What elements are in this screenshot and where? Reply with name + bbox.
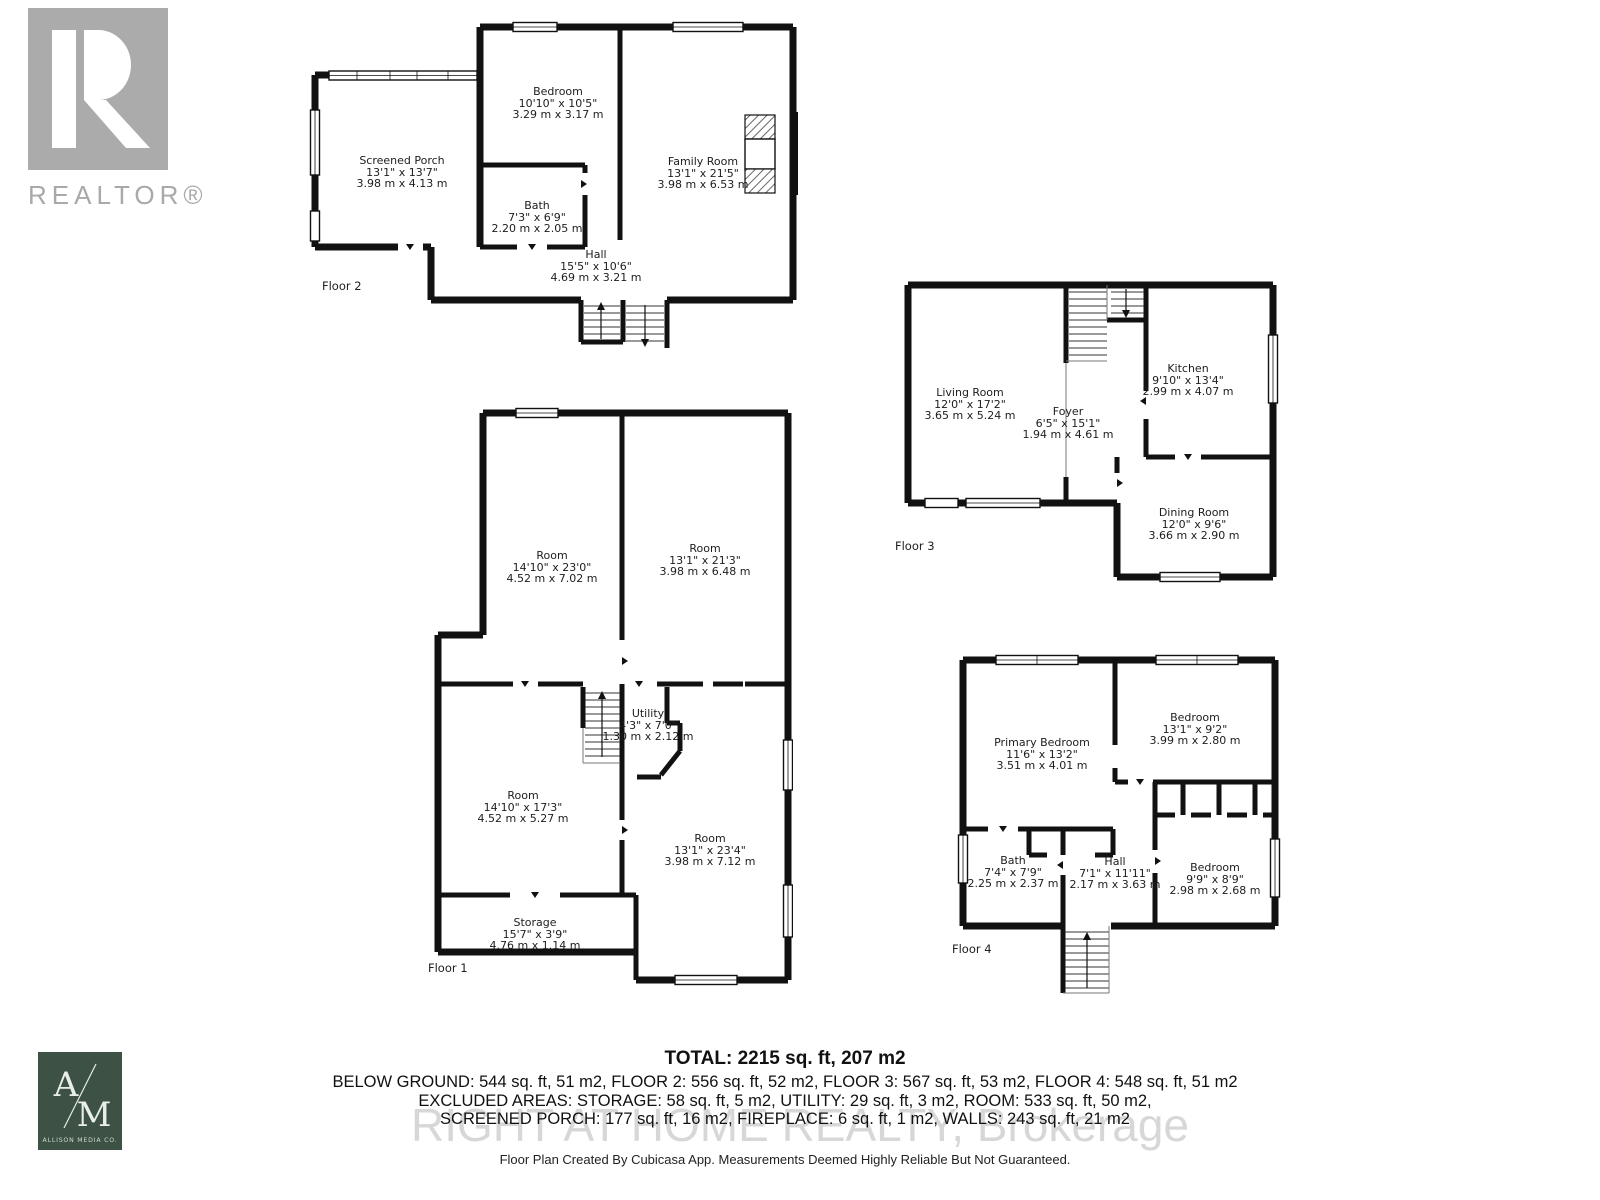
floor4-plan [943,643,1283,998]
room-label-family-room: Family Room 13'1" x 21'5" 3.98 m x 6.53 … [658,156,749,191]
allison-monogram-m: M [77,1095,112,1135]
room-label-bath: Bath 7'3" x 6'9" 2.20 m x 2.05 m [492,200,583,235]
stairs-icon [1063,926,1109,993]
floorplan-floor-4: Primary Bedroom 11'6" x 13'2" 3.51 m x 4… [943,643,1283,998]
floor3-label: Floor 3 [895,539,935,553]
room-label-dining-room: Dining Room 12'0" x 9'6" 3.66 m x 2.90 m [1149,507,1240,542]
excluded-areas-text-2: SCREENED PORCH: 177 sq. ft, 16 m2, FIREP… [250,1110,1320,1129]
allison-monogram-a: A [53,1065,79,1105]
allison-logo-text: ALLISON MEDIA CO. [43,1137,118,1144]
allison-media-logo-icon: A M ALLISON MEDIA CO. [38,1052,122,1150]
disclaimer-text: Floor Plan Created By Cubicasa App. Meas… [250,1152,1320,1167]
realtor-logo: REALTOR® [28,8,208,211]
realtor-logo-text: REALTOR® [28,180,212,211]
realtor-logo-icon [28,8,168,170]
window-icon [516,409,793,985]
floor1-label: Floor 1 [428,961,468,975]
room-label-foyer: Foyer 6'5" x 15'1" 1.94 m x 4.61 m [1023,406,1114,441]
floor-areas-text: BELOW GROUND: 544 sq. ft, 51 m2, FLOOR 2… [250,1073,1320,1092]
floor1-walls [438,413,788,980]
floorplan-page: REALTOR® [0,0,1600,1200]
excluded-areas-text: EXCLUDED AREAS: STORAGE: 58 sq. ft, 5 m2… [250,1092,1320,1111]
allison-media-logo: A M ALLISON MEDIA CO. [38,1052,122,1154]
room-label-kitchen: Kitchen 9'10" x 13'4" 2.99 m x 4.07 m [1143,363,1234,398]
room-label-bedroom-2: Bedroom 13'1" x 9'2" 3.99 m x 2.80 m [1150,712,1241,747]
total-area-text: TOTAL: 2215 sq. ft, 207 m2 [250,1048,1320,1070]
floor4-walls [963,660,1275,993]
room-label-bedroom: Bedroom 10'10" x 10'5" 3.29 m x 3.17 m [513,86,604,121]
room-label-room-1: Room 14'10" x 23'0" 4.52 m x 7.02 m [507,550,598,585]
room-label-utility: Utility 4'3" x 7'0" 1.30 m x 2.12 m [603,708,694,743]
floor2-label: Floor 2 [322,279,362,293]
room-label-room-3: Room 14'10" x 17'3" 4.52 m x 5.27 m [478,790,569,825]
floorplan-floor-1: Room 14'10" x 23'0" 4.52 m x 7.02 m Room… [423,403,793,988]
fireplace-icon [745,112,798,195]
area-summary: TOTAL: 2215 sq. ft, 207 m2 BELOW GROUND:… [250,1048,1320,1129]
stairs-icon [1066,285,1144,361]
room-label-storage: Storage 15'7" x 3'9" 4.76 m x 1.14 m [490,917,581,952]
floorplan-floor-2: Screened Porch 13'1" x 13'7" 3.98 m x 4.… [298,15,798,363]
room-label-screened-porch: Screened Porch 13'1" x 13'7" 3.98 m x 4.… [357,155,448,190]
room-label-living-room: Living Room 12'0" x 17'2" 3.65 m x 5.24 … [925,387,1016,422]
floor4-label: Floor 4 [952,942,992,956]
floorplan-floor-3: Living Room 12'0" x 17'2" 3.65 m x 5.24 … [888,273,1283,585]
room-label-bath: Bath 7'4" x 7'9" 2.25 m x 2.37 m [968,855,1059,890]
floor1-plan [423,403,793,988]
room-label-room-4: Room 13'1" x 23'4" 3.98 m x 7.12 m [665,833,756,868]
room-label-bedroom-3: Bedroom 9'9" x 8'9" 2.98 m x 2.68 m [1170,862,1261,897]
door-marker-icon [1117,397,1192,487]
room-label-room-2: Room 13'1" x 21'3" 3.98 m x 6.48 m [660,543,751,578]
room-label-hall: Hall 7'1" x 11'11" 2.17 m x 3.63 m [1070,856,1161,891]
room-label-primary-bedroom: Primary Bedroom 11'6" x 13'2" 3.51 m x 4… [994,737,1090,772]
room-label-hall: Hall 15'5" x 10'6" 4.69 m x 3.21 m [551,249,642,284]
